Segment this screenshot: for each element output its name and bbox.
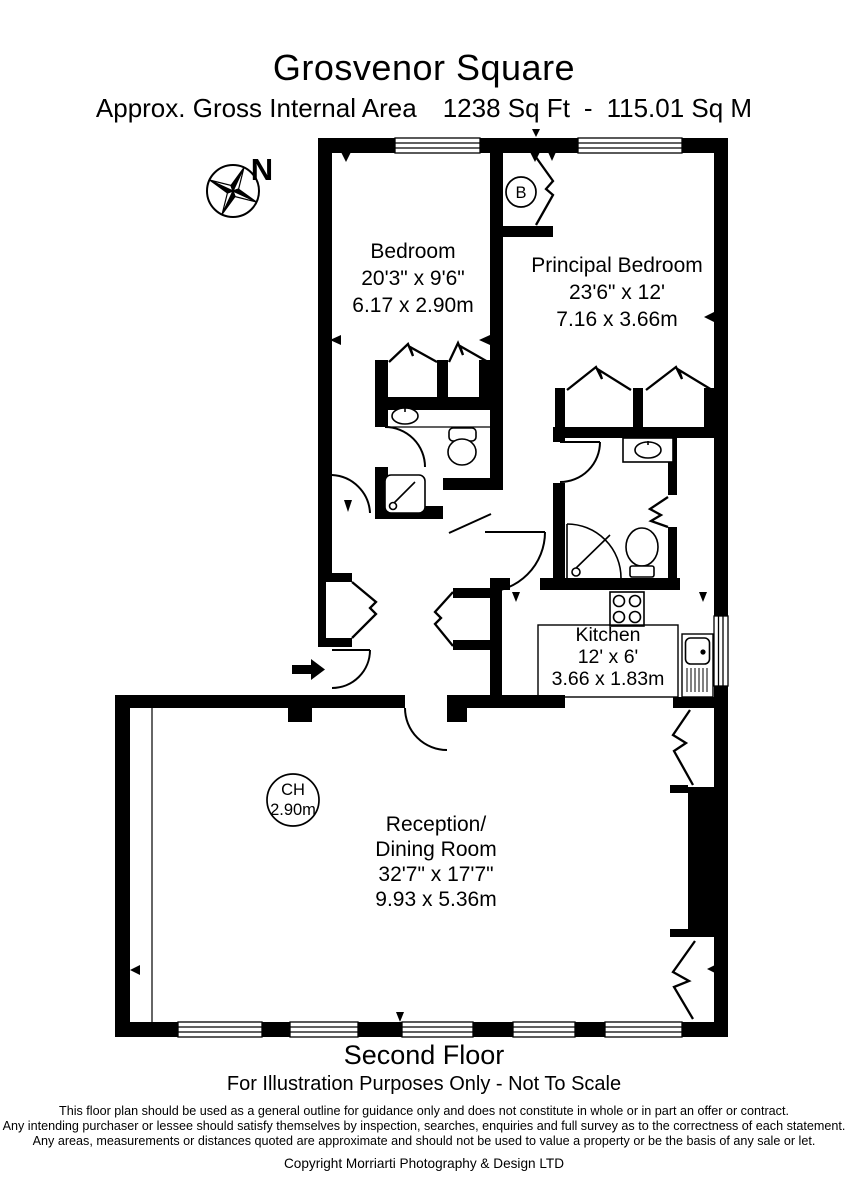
principal-bedroom-name: Principal Bedroom (531, 254, 703, 277)
area-label: Approx. Gross Internal Area (96, 93, 417, 124)
area-sqm: 115.01 Sq M (607, 93, 753, 124)
bedroom-wardrobe-door-2 (449, 343, 488, 362)
reception-label: Reception/ Dining Room 32'7" x 17'7" 9.9… (375, 813, 496, 911)
entrance-arrow-icon (292, 659, 325, 680)
area-summary: Approx. Gross Internal Area 1238 Sq Ft -… (0, 93, 848, 124)
marker-kitchen-door-2 (699, 592, 707, 602)
bathroom-toilet (448, 428, 476, 465)
kitchen-hob (610, 592, 644, 626)
compass-rose-icon: N (207, 152, 273, 217)
floor-label: Second Floor (0, 1040, 848, 1070)
kitchen-sink (682, 634, 713, 697)
reception-metric: 9.93 x 5.36m (375, 888, 496, 911)
entrance-door (332, 650, 370, 688)
footer: Second Floor For Illustration Purposes O… (0, 1040, 848, 1171)
marker-kitchen-door (512, 592, 520, 602)
kitchen-label: Kitchen 12' x 6' 3.66 x 1.83m (552, 624, 665, 690)
principal-wardrobe-door-2 (646, 367, 712, 390)
floor-plan-drawing: N B CH 2.90m Bedroom 20'3" x 9'6" 6.17 x… (0, 0, 848, 1200)
reception-closet-door-1 (673, 710, 693, 785)
marker-reception-right (707, 964, 717, 974)
area-sqft: 1238 Sq Ft (443, 93, 570, 124)
scale-note: For Illustration Purposes Only - Not To … (0, 1072, 848, 1096)
disclaimer: This floor plan should be used as a gene… (0, 1104, 848, 1150)
hall-closet-door (352, 582, 376, 638)
window-top-1 (395, 138, 480, 153)
bathroom-ajar-door-leaf (449, 514, 491, 533)
ceiling-height-value: 2.90m (270, 801, 316, 819)
fixtures (152, 408, 713, 1022)
ceiling-height-abbr: CH (281, 781, 305, 799)
copyright: Copyright Morriarti Photography & Design… (0, 1156, 848, 1171)
marker-top (532, 129, 540, 137)
window-right (714, 616, 728, 686)
marker-reception-left (130, 965, 140, 975)
marker-bedroom (341, 152, 351, 162)
reception-closet-door-2 (673, 941, 695, 1019)
window-bottom-2 (290, 1022, 358, 1037)
bathroom-shower (385, 475, 425, 513)
kitchen-metric: 3.66 x 1.83m (552, 668, 665, 690)
ensuite-shower (567, 524, 621, 578)
hallway-door (332, 475, 370, 513)
compass-north-label: N (251, 152, 273, 187)
reception-name-2: Dining Room (375, 838, 496, 861)
principal-bedroom-label: Principal Bedroom 23'6" x 12' 7.16 x 3.6… (531, 254, 703, 331)
bedroom-wardrobe-door-1 (389, 344, 437, 362)
principal-bedroom-metric: 7.16 x 3.66m (556, 308, 677, 331)
marker-bottom-wall (396, 1012, 404, 1022)
bedroom-label: Bedroom 20'3" x 9'6" 6.17 x 2.90m (352, 240, 473, 317)
ceiling-height-badge: CH 2.90m (267, 774, 319, 826)
ensuite-toilet (626, 528, 658, 577)
kitchen-name: Kitchen (575, 624, 640, 646)
hall-reception-door (405, 708, 447, 750)
ensuite-inner-door (650, 497, 668, 527)
disclaimer-line: This floor plan should be used as a gene… (0, 1104, 848, 1119)
reception-imperial: 32'7" x 17'7" (378, 863, 493, 886)
bedroom-metric: 6.17 x 2.90m (352, 294, 473, 317)
marker-principal-2 (548, 152, 556, 161)
disclaimer-line: Any intending purchaser or lessee should… (0, 1119, 848, 1134)
window-bottom-3 (402, 1022, 473, 1037)
window-bottom-4 (513, 1022, 575, 1037)
hall-closet-door-2 (435, 592, 453, 646)
window-bottom-5 (605, 1022, 682, 1037)
boiler-badge: B (506, 177, 536, 207)
marker-right-wall (704, 312, 714, 322)
page-title: Grosvenor Square (0, 48, 848, 88)
bathroom-door (385, 427, 425, 467)
bedroom-name: Bedroom (370, 240, 455, 263)
reception-name-1: Reception/ (386, 813, 487, 836)
boiler-label: B (515, 184, 526, 202)
floorplan-page: N B CH 2.90m Bedroom 20'3" x 9'6" 6.17 x… (0, 0, 848, 1200)
window-top-2 (578, 138, 682, 153)
ensuite-basin (623, 438, 673, 462)
ensuite-door (560, 442, 600, 482)
marker-hallway (344, 500, 352, 512)
header: Grosvenor Square Approx. Gross Internal … (0, 48, 848, 124)
disclaimer-line: Any areas, measurements or distances quo… (0, 1134, 848, 1149)
principal-bedroom-imperial: 23'6" x 12' (569, 281, 665, 304)
bathroom-basin (392, 408, 418, 424)
marker-divider (479, 335, 490, 345)
kitchen-imperial: 12' x 6' (578, 646, 639, 668)
bedroom-imperial: 20'3" x 9'6" (361, 267, 465, 290)
area-separator: - (584, 93, 593, 124)
principal-wardrobe-door-1 (567, 367, 631, 390)
window-bottom-1 (178, 1022, 262, 1037)
